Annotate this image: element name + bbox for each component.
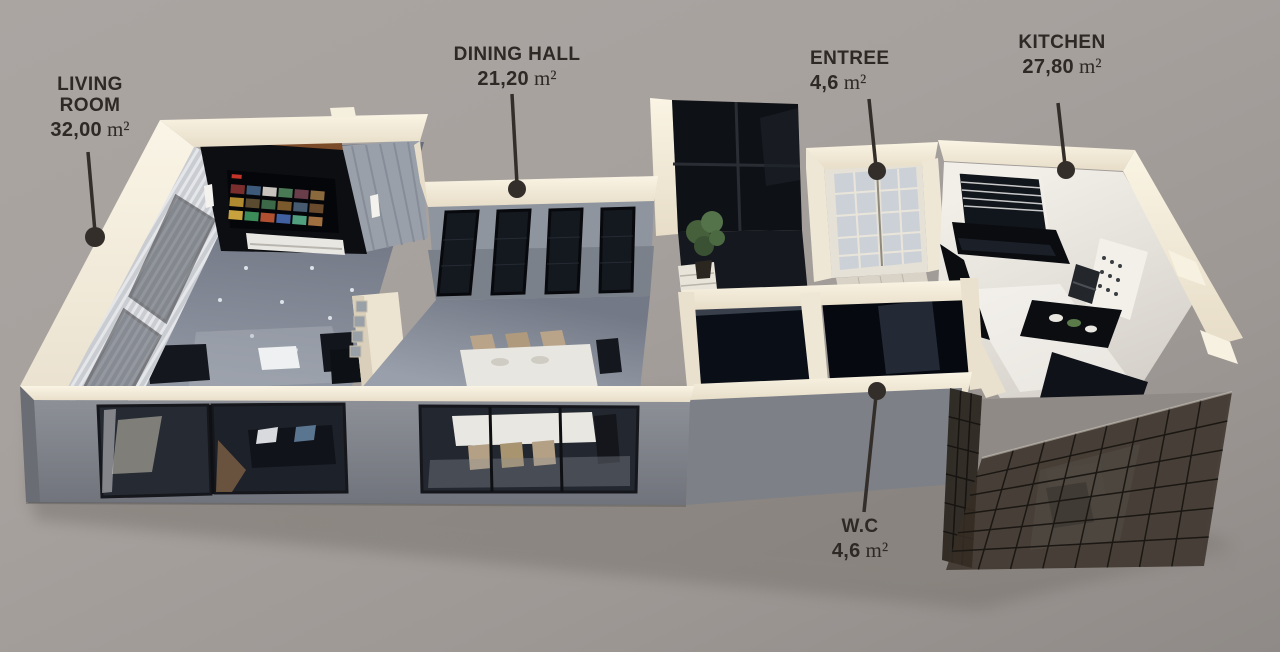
room-area: 4,6m² <box>798 538 922 563</box>
room-label-dining-hall: DINING HALL 21,20m² <box>437 44 597 91</box>
room-name: LIVING ROOM <box>20 74 160 116</box>
floorplan-page: LIVING ROOM 32,00m² DINING HALL 21,20m² … <box>0 0 1280 652</box>
leader-living-room <box>85 152 105 247</box>
room-area: 32,00m² <box>20 117 160 142</box>
floorplan-3d-render <box>0 0 1280 652</box>
room-label-entree: ENTREE 4,6m² <box>810 48 930 95</box>
wc-block <box>678 278 984 402</box>
room-name: ENTREE <box>810 48 930 69</box>
leader-entree <box>868 99 886 180</box>
room-name: KITCHEN <box>1000 32 1124 53</box>
room-label-living-room: LIVING ROOM 32,00m² <box>20 74 160 142</box>
terrace-glass-box <box>942 388 1232 570</box>
room-name: W.C <box>798 516 922 537</box>
room-area: 21,20m² <box>437 66 597 91</box>
leader-kitchen <box>1057 103 1075 179</box>
room-area: 4,6m² <box>810 70 930 95</box>
partition-block <box>650 98 808 300</box>
room-label-kitchen: KITCHEN 27,80m² <box>1000 32 1124 79</box>
front-facade <box>20 386 962 506</box>
room-area: 27,80m² <box>1000 54 1124 79</box>
room-name: DINING HALL <box>437 44 597 65</box>
room-label-wc: W.C 4,6m² <box>798 516 922 563</box>
